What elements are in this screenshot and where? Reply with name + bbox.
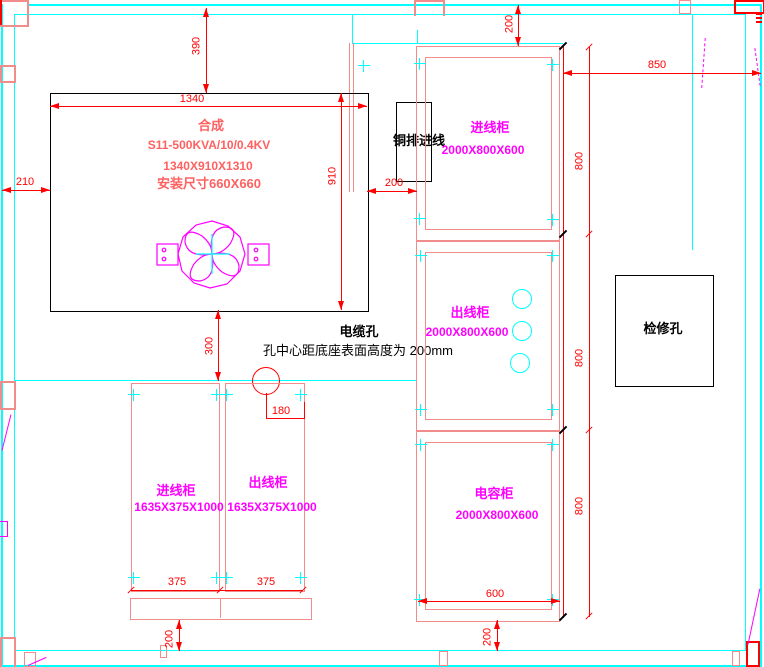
wall-top-step-vertical [352, 14, 353, 44]
dim-180-ext-line [266, 393, 267, 419]
dim-850-label: 850 [648, 60, 666, 71]
wall-block-left-2 [0, 381, 16, 410]
wall-right-partition [692, 14, 693, 250]
wall-block-left-3 [0, 637, 16, 667]
dim-tick [559, 613, 567, 621]
datum-marker [221, 389, 233, 401]
dim-210-label: 210 [16, 177, 34, 188]
dim-390-label: 390 [192, 37, 203, 55]
knockout-circle-3 [510, 353, 530, 373]
wall-bottom-inner [14, 650, 746, 651]
door-swing-left [2, 414, 12, 450]
cabinet-right-3-size: 2000X800X600 [456, 509, 539, 521]
dim-180-ext-line2 [304, 402, 305, 419]
cabinet-right-1-name: 进线柜 [470, 121, 509, 134]
dim-600-line [418, 601, 560, 602]
wall-corner-red-edge [0, 0, 2, 25]
cabinet-right-3-inner [425, 442, 552, 610]
datum-marker [415, 404, 427, 416]
corner-mark-3 [756, 21, 762, 23]
wall-right-inner [745, 14, 746, 651]
dim-arrow [215, 310, 221, 319]
dim-arrow [418, 598, 427, 604]
cabinet-bottom-1-size: 1635X375X1000 [134, 501, 223, 513]
datum-marker [547, 59, 559, 71]
dim-910-line [341, 93, 342, 310]
datum-marker [295, 389, 307, 401]
dim-910-label: 910 [328, 167, 339, 185]
knockout-circle-1 [512, 289, 532, 309]
dim-200-br-label: 200 [483, 628, 494, 646]
dim-arrow [50, 103, 59, 109]
dim-tick [585, 612, 592, 619]
datum-marker [414, 213, 426, 225]
corner-block-top-right [734, 0, 764, 14]
dim-180-label: 180 [272, 406, 290, 417]
wall-notch-segment [417, 30, 418, 43]
cabinet-bottom-base-divider [220, 598, 221, 618]
datum-marker [547, 439, 559, 451]
dim-600-label: 600 [486, 589, 504, 600]
fan-symbol [152, 218, 272, 293]
dim-arrow [41, 187, 50, 193]
door-jamb-bottom-3 [732, 651, 740, 666]
wall-left-outer [1, 4, 3, 666]
dim-arrow [494, 642, 500, 651]
knockout-circle-2 [512, 321, 532, 341]
dim-arrow [752, 70, 761, 76]
dim-arrow [408, 188, 417, 194]
dim-arrow [203, 84, 209, 93]
dim-arrow [338, 301, 344, 310]
dim-800-label-2: 800 [575, 349, 586, 367]
dim-arrow [203, 8, 209, 17]
dim-arrow [176, 620, 182, 629]
dim-800-chain-line [563, 45, 564, 618]
cabinet-right-2-size: 2000X800X600 [426, 326, 509, 338]
datum-marker [415, 439, 427, 451]
cabinet-right-3-name: 电容柜 [474, 487, 513, 500]
dim-arrow [563, 70, 572, 76]
datum-marker [128, 572, 140, 584]
datum-marker [128, 389, 140, 401]
dim-arrow [367, 188, 376, 194]
dim-180-line [266, 418, 305, 419]
dim-arrow [176, 642, 182, 651]
door-bracket-left-c [0, 536, 8, 537]
datum-marker [415, 250, 427, 262]
dim-200-bl-label: 200 [165, 630, 176, 648]
cabinet-bottom-1-name: 进线柜 [156, 484, 195, 497]
wall-block-left-1 [0, 65, 16, 83]
door-frame-bottom-right [746, 641, 760, 667]
cabinet-right-2-name: 出线柜 [450, 306, 489, 319]
datum-marker [547, 404, 559, 416]
wall-right-outer [760, 4, 762, 666]
cabinet-bottom-2-size: 1635X375X1000 [227, 501, 316, 513]
wall-top-outer [28, 4, 762, 6]
dim-800-chain-line2 [589, 47, 590, 617]
dim-arrow [338, 93, 344, 102]
wall-block-top-right [679, 0, 691, 14]
datum-marker [221, 572, 233, 584]
dim-800-label-3: 800 [575, 497, 586, 515]
dim-arrow [515, 5, 521, 14]
door-bracket-left-b [7, 521, 8, 537]
dim-375-label-1: 375 [168, 577, 186, 588]
dim-800-label-1: 800 [575, 152, 586, 170]
corner-mark-2 [756, 17, 762, 19]
dim-300-line [218, 310, 219, 381]
datum-marker [547, 250, 559, 262]
floor-plan-drawing: 合成 S11-500KVA/10/0.4KV 1340X910X1310 安装尺… [0, 0, 764, 667]
dim-300-label: 300 [205, 337, 216, 355]
wall-top-step [352, 43, 563, 44]
dim-arrow [494, 620, 500, 629]
access-hole-label: 检修孔 [643, 322, 682, 335]
wall-corner-block [0, 0, 29, 27]
door-jamb-bottom-2 [439, 651, 448, 666]
door-swing-bottom-right [748, 589, 761, 645]
datum-marker [547, 214, 559, 226]
door-swing-top-right-a [701, 38, 705, 88]
dim-1340-label: 1340 [180, 94, 204, 105]
datum-marker [295, 572, 307, 584]
dim-850-line [563, 73, 761, 74]
corner-mark-1 [756, 13, 762, 15]
dim-arrow [551, 598, 560, 604]
busbar-wall-notch [414, 0, 445, 16]
transformer-size: 1340X910X1310 [163, 160, 252, 172]
dim-arrow [215, 372, 221, 381]
transformer-title: 合成 [198, 119, 224, 132]
dim-200-top-label: 200 [505, 15, 516, 33]
dim-arrow [358, 103, 367, 109]
wall-left-inner [14, 14, 15, 651]
dim-arrow [2, 187, 11, 193]
transformer-install-size: 安装尺寸660X660 [157, 177, 261, 190]
transformer-spec: S11-500KVA/10/0.4KV [148, 139, 271, 151]
dim-200-gap-label: 200 [385, 178, 403, 189]
cabinet-bottom-2-name: 出线柜 [248, 476, 287, 489]
cabinet-right-1-size: 2000X800X600 [442, 144, 525, 156]
cable-hole-title: 电缆孔 [339, 325, 378, 338]
dim-arrow [515, 37, 521, 46]
dim-390-line [206, 8, 207, 93]
cabinet-bottom-base [130, 598, 312, 620]
dim-1340-line [50, 106, 367, 107]
datum-marker [414, 58, 426, 70]
datum-marker [358, 60, 370, 72]
dim-375-label-2: 375 [257, 577, 275, 588]
wall-top-inner [14, 14, 746, 15]
